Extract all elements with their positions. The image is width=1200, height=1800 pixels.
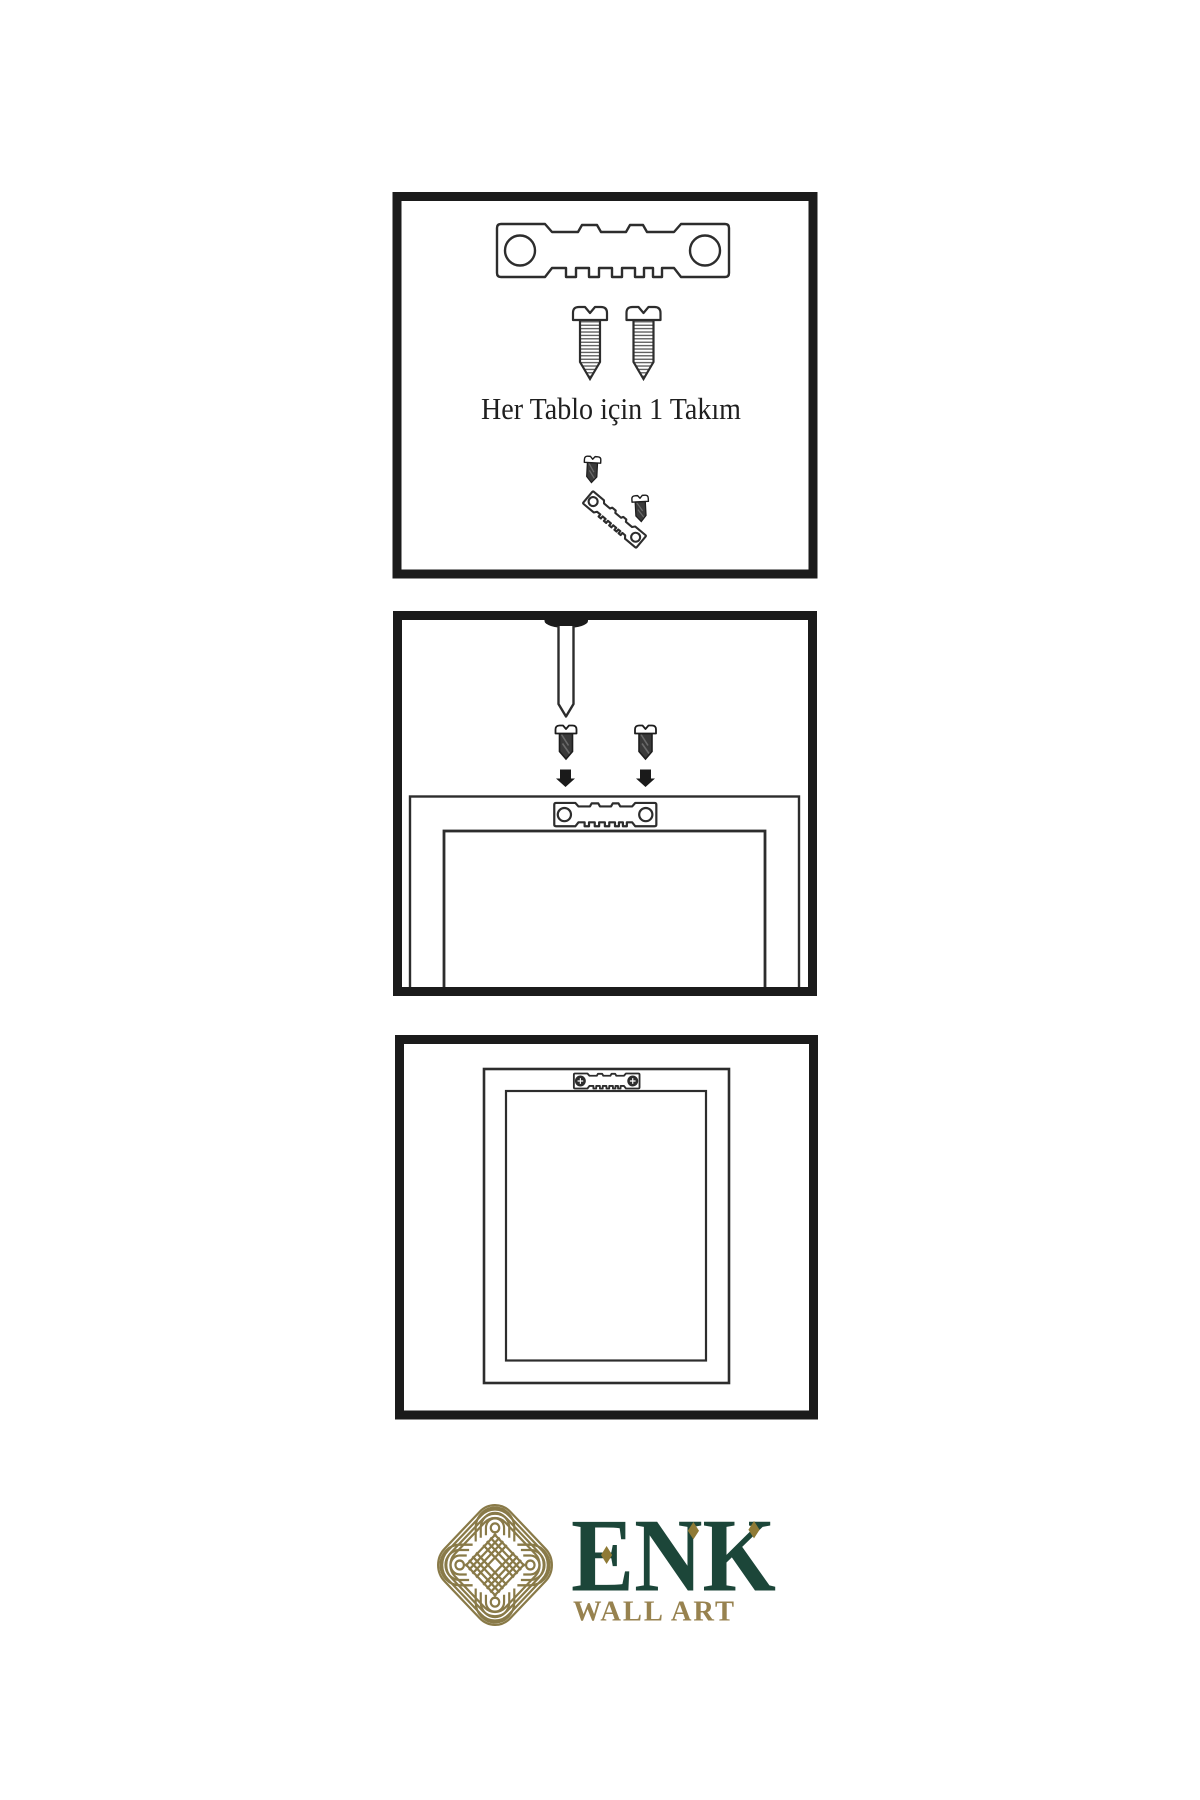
svg-text:WALL ART: WALL ART: [573, 1596, 736, 1628]
svg-text:Her Tablo için 1 Takım: Her Tablo için 1 Takım: [481, 391, 741, 426]
